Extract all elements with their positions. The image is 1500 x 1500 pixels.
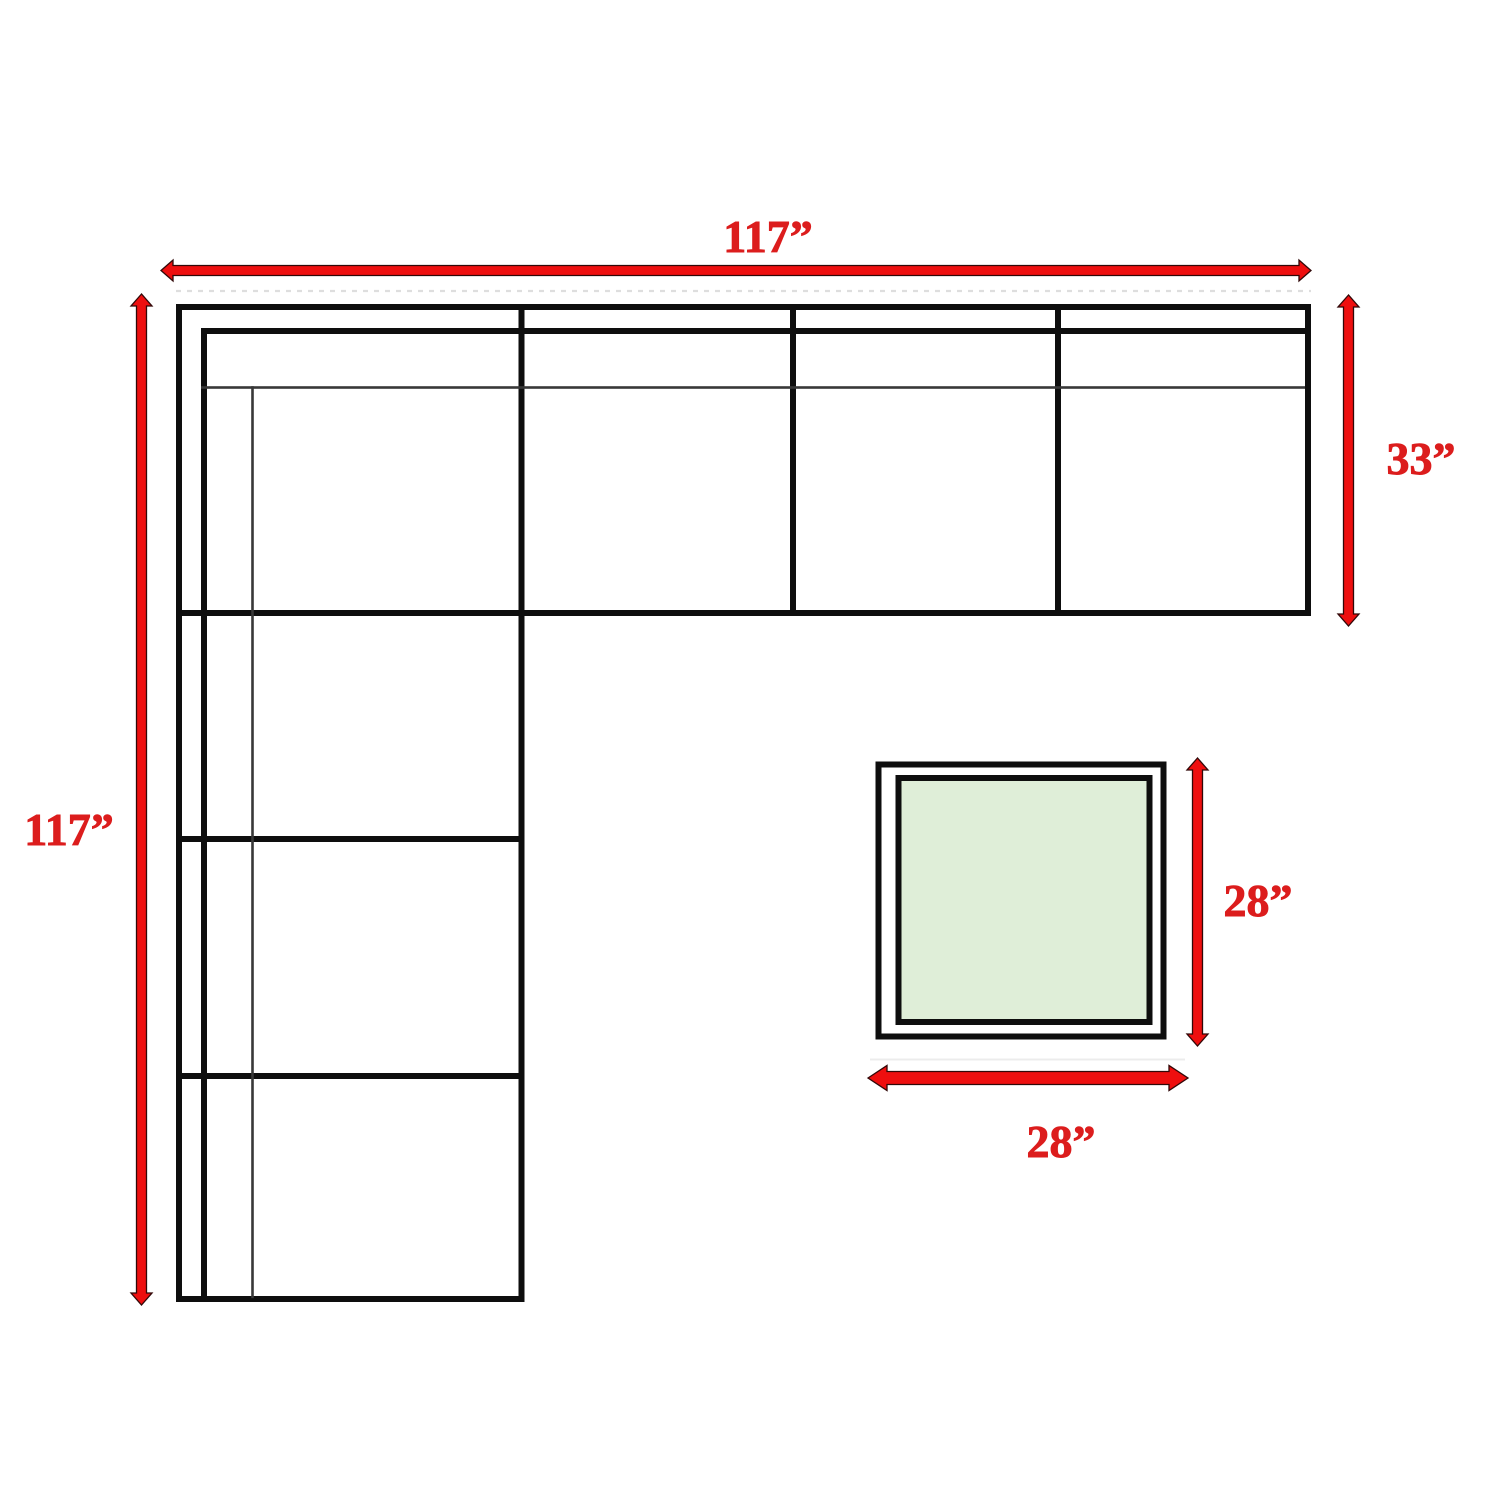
- svg-text:28”: 28”: [1027, 1116, 1096, 1167]
- svg-text:117”: 117”: [723, 211, 812, 262]
- svg-text:33”: 33”: [1387, 433, 1456, 484]
- svg-text:28”: 28”: [1224, 875, 1293, 926]
- svg-text:117”: 117”: [24, 804, 113, 855]
